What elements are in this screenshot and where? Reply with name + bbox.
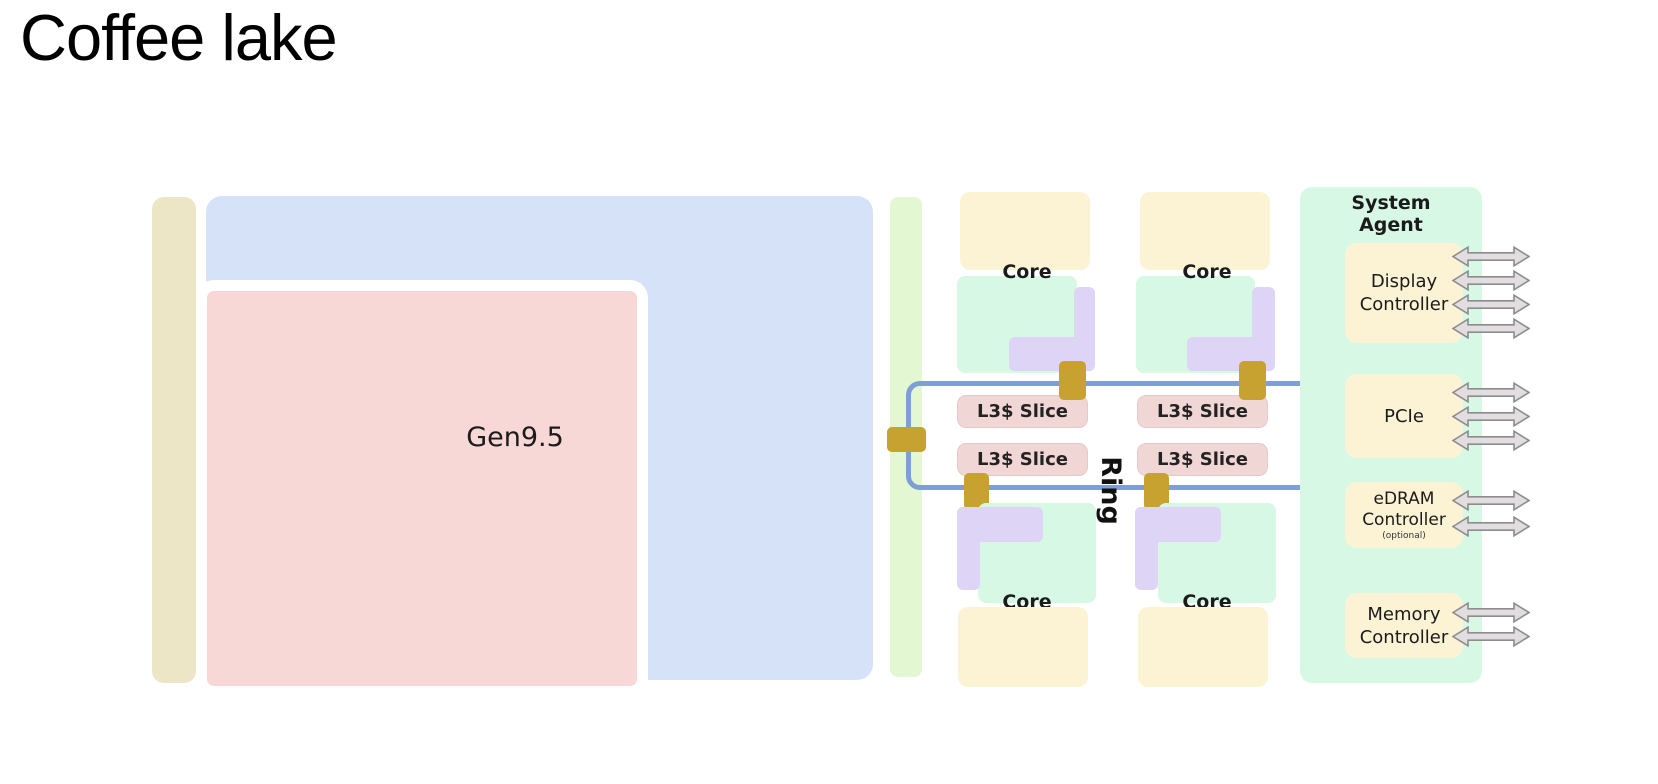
core-l2-bottom-left-foot: [957, 507, 1043, 542]
bidirectional-arrow-icon: [1452, 626, 1530, 647]
core-cap-bottom-right: [1138, 607, 1268, 687]
edram-controller-block: eDRAM Controller (optional): [1345, 482, 1463, 548]
display-controller-arrows: [1452, 246, 1530, 339]
bidirectional-arrow-icon: [1452, 318, 1530, 339]
core-l2-bottom-right-foot: [1135, 507, 1221, 542]
l3-slice-bottom-left: L3$ Slice: [957, 443, 1088, 476]
memory-controller-block: Memory Controller: [1345, 593, 1463, 658]
core-label-top-right: Core: [1142, 260, 1272, 284]
display-controller-block: Display Controller: [1345, 243, 1463, 343]
cpu-die-diagram: Gen9.5 Core Core L3$ Slice L3$ Slice L3$…: [0, 0, 1658, 784]
ring-stop-top-right: [1239, 361, 1266, 400]
pcie-block: PCIe: [1345, 374, 1463, 458]
edram-optional-note: (optional): [1382, 531, 1426, 542]
memory-controller-arrows: [1452, 602, 1530, 647]
pcie-arrows: [1452, 382, 1530, 451]
bidirectional-arrow-icon: [1452, 270, 1530, 291]
l3-slice-bottom-right: L3$ Slice: [1137, 443, 1268, 476]
bidirectional-arrow-icon: [1452, 406, 1530, 427]
gpu-block: [196, 280, 648, 697]
edram-controller-label: eDRAM Controller: [1362, 489, 1446, 531]
gpu-label: Gen9.5: [395, 424, 635, 452]
system-agent-title: System Agent: [1300, 192, 1482, 236]
bidirectional-arrow-icon: [1452, 246, 1530, 267]
ring-stop-top-left: [1059, 361, 1086, 400]
bidirectional-arrow-icon: [1452, 430, 1530, 451]
bidirectional-arrow-icon: [1452, 294, 1530, 315]
core-cap-bottom-left: [958, 607, 1088, 687]
bidirectional-arrow-icon: [1452, 382, 1530, 403]
core-label-top-left: Core: [962, 260, 1092, 284]
ring-stop-left: [887, 427, 926, 452]
core-cap-top-right: [1140, 192, 1270, 270]
bidirectional-arrow-icon: [1452, 490, 1530, 511]
edram-controller-arrows: [1452, 490, 1530, 537]
core-cap-top-left: [960, 192, 1090, 270]
bidirectional-arrow-icon: [1452, 602, 1530, 623]
bidirectional-arrow-icon: [1452, 516, 1530, 537]
outer-io-bar: [152, 197, 196, 683]
